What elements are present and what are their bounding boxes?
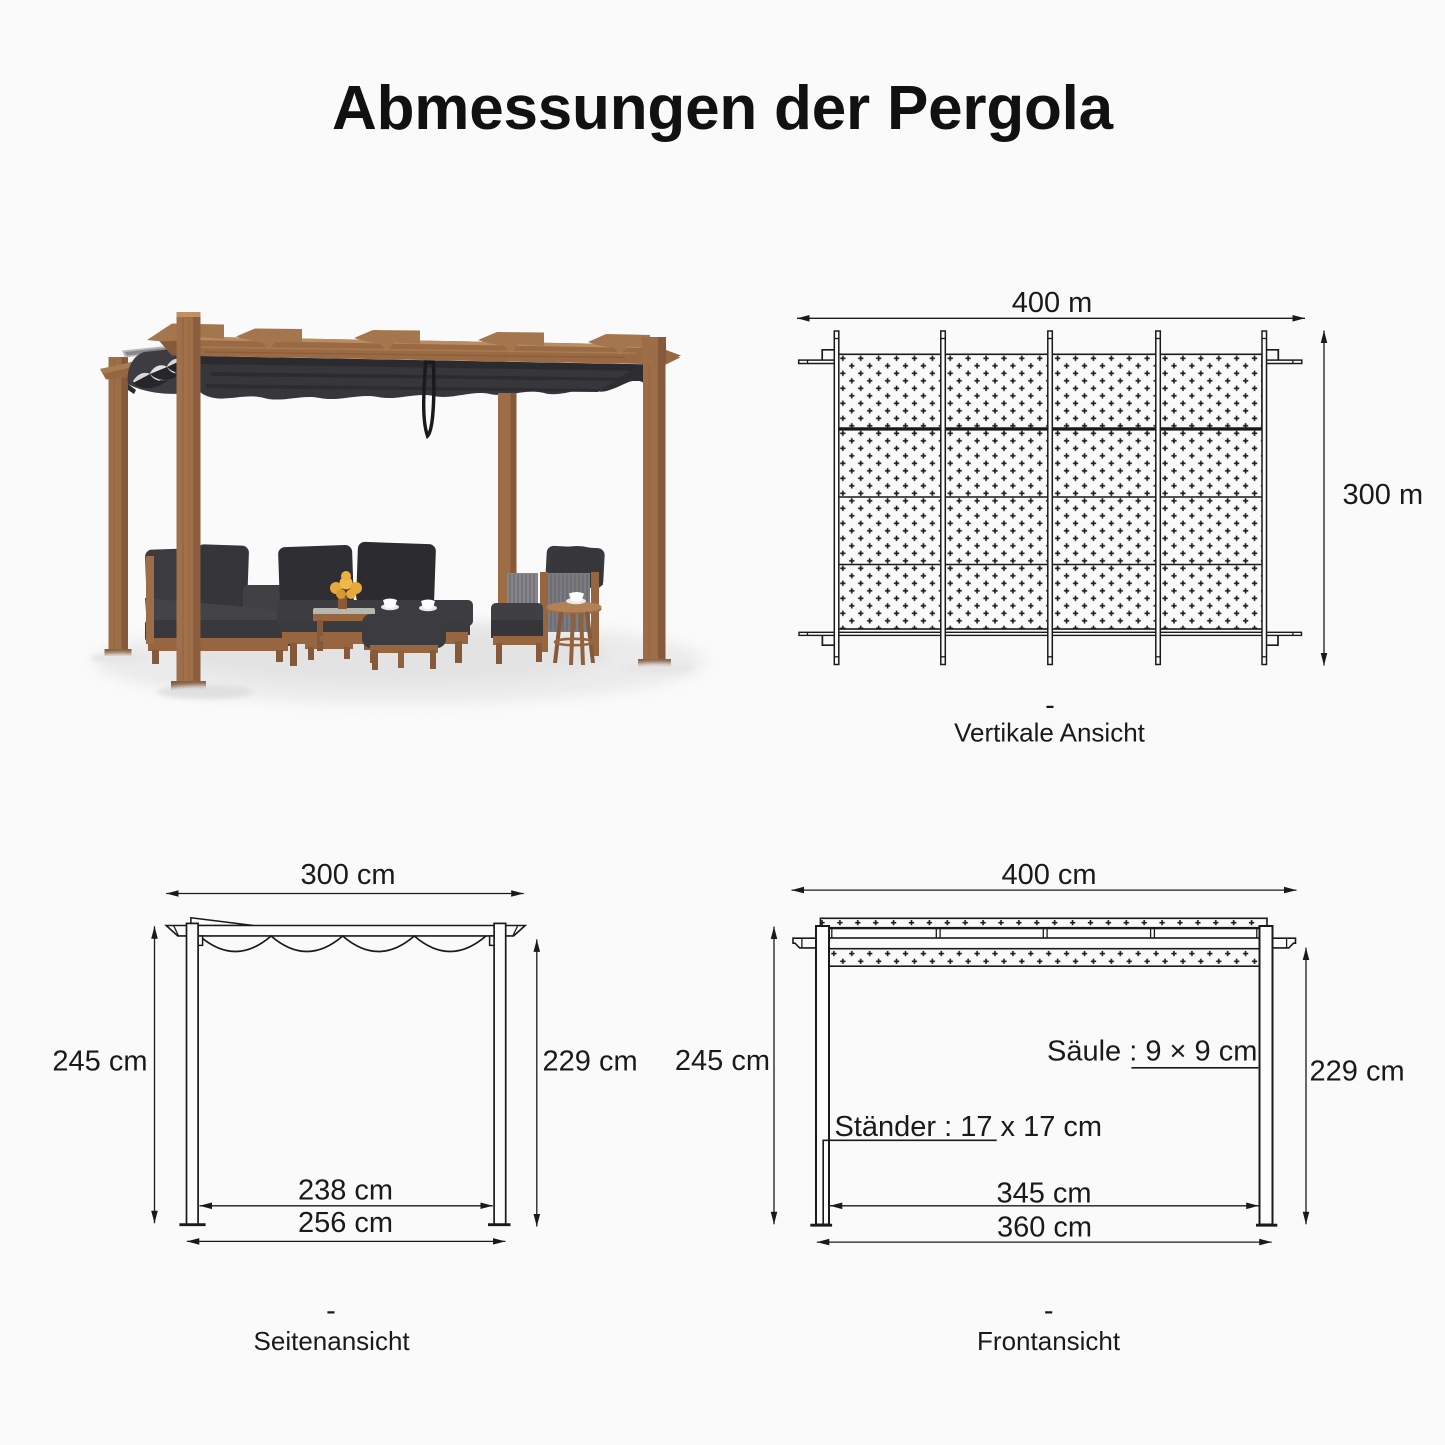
svg-text:Frontansicht: Frontansicht xyxy=(977,1326,1121,1356)
svg-text:300 cm: 300 cm xyxy=(300,859,395,891)
svg-text:229 cm: 229 cm xyxy=(1310,1056,1405,1088)
svg-text:-: - xyxy=(326,1295,336,1327)
svg-text:300 m: 300 m xyxy=(1343,479,1424,511)
svg-text:Vertikale Ansicht: Vertikale Ansicht xyxy=(954,718,1146,748)
svg-text:400 cm: 400 cm xyxy=(1001,859,1096,891)
svg-text:-: - xyxy=(1044,1295,1054,1327)
svg-text:245 cm: 245 cm xyxy=(52,1046,147,1078)
svg-text:345 cm: 345 cm xyxy=(996,1178,1091,1210)
svg-text:229 cm: 229 cm xyxy=(543,1046,638,1078)
svg-text:Seitenansicht: Seitenansicht xyxy=(254,1326,411,1356)
svg-text:238 cm: 238 cm xyxy=(298,1174,393,1206)
svg-text:256 cm: 256 cm xyxy=(298,1207,393,1239)
svg-text:360 cm: 360 cm xyxy=(997,1212,1092,1244)
svg-text:Ständer : 17 x 17 cm: Ständer : 17 x 17 cm xyxy=(835,1111,1103,1143)
svg-text:Säule : 9 × 9 cm: Säule : 9 × 9 cm xyxy=(1047,1036,1257,1068)
svg-text:400 m: 400 m xyxy=(1012,287,1093,319)
svg-text:245 cm: 245 cm xyxy=(675,1045,770,1077)
